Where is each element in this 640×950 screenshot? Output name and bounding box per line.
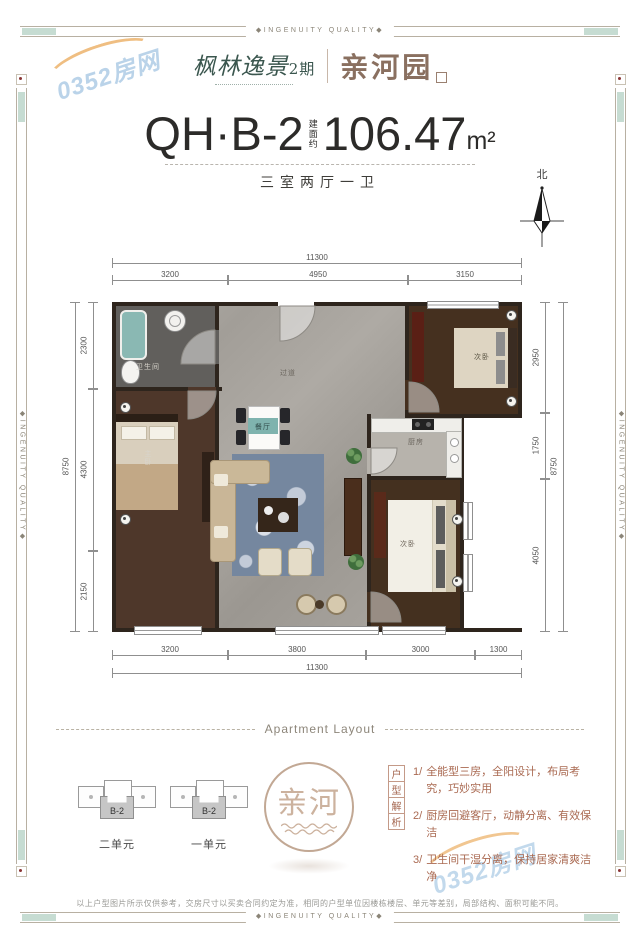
building-key-plan: B-2 二单元 B-2 一单元 (78, 772, 248, 852)
seal-text: 亲河 (277, 778, 341, 822)
area-label: 建面约 (307, 119, 320, 149)
dim-value: 4300 (80, 389, 94, 551)
project-name: 亲河园 (340, 46, 433, 86)
dim-value: 3000 (366, 642, 475, 656)
dim-value: 2300 (80, 302, 94, 389)
north-label: 北 (519, 166, 565, 182)
frame-cap (22, 28, 56, 35)
divider-dashes (56, 729, 255, 730)
door-arcs (112, 302, 522, 632)
frame-band-left: ◆INGENUITY QUALITY◆ (16, 88, 27, 864)
frame-corner-ornament (16, 866, 27, 877)
dim-value: 8750 (550, 302, 564, 632)
dot-icon (89, 795, 93, 799)
brand-ornament (215, 84, 293, 85)
dim-right-total: 8750 (550, 302, 564, 632)
point-text: 卫生间干湿分离，保持居家清爽洁净 (426, 852, 598, 886)
brand-logo: 枫林逸景2期 (193, 47, 316, 85)
room-label-bathroom: 卫生间 (136, 362, 160, 372)
area-value: 106.47 (323, 106, 467, 161)
unit-code: QH·B-2 (144, 106, 303, 161)
point-number: 2/ (413, 808, 422, 842)
dim-value: 1300 (475, 642, 522, 656)
frame-cap (22, 914, 56, 921)
analysis-heading: 户 型 解 析 (388, 766, 405, 886)
frame-slogan-bottom: ◆INGENUITY QUALITY◆ (246, 908, 394, 926)
frame-cap (584, 28, 618, 35)
frame-cap (617, 830, 624, 860)
heading-char: 户 (388, 765, 405, 782)
heading-char: 型 (388, 781, 405, 798)
point-number: 3/ (413, 852, 422, 886)
dim-value: 3200 (112, 267, 228, 281)
project-seal-icon (436, 72, 447, 83)
dim-value: 8750 (62, 302, 76, 632)
point-text: 全能型三房，全阳设计，布局考究，巧妙实用 (426, 764, 598, 798)
dot-icon (141, 795, 145, 799)
dim-value: 2950 (532, 302, 546, 413)
section-divider-label: Apartment Layout (265, 722, 376, 736)
dot-icon (181, 795, 185, 799)
dim-right-segments: 2950 1750 4050 (532, 302, 546, 632)
point-number: 1/ (413, 764, 422, 798)
frame-slogan-left: ◆INGENUITY QUALITY◆ (18, 399, 26, 552)
frame-slogan-right: ◆INGENUITY QUALITY◆ (617, 399, 625, 552)
frame-band-right: ◆INGENUITY QUALITY◆ (615, 88, 626, 864)
point-text: 厨房回避客厅，动静分离、有效保洁 (426, 808, 598, 842)
analysis-point: 1/ 全能型三房，全阳设计，布局考究，巧妙实用 (413, 764, 598, 798)
brand-name: 枫林逸景2期 (193, 47, 316, 81)
title-divider (165, 164, 475, 165)
dim-value: 3150 (408, 267, 522, 281)
room-label-dining: 餐厅 (255, 422, 271, 432)
disclaimer: 以上户型图片所示仅供参考，交房尺寸以买卖合同约定为准，相同的户型单位因楼栋楼层、… (60, 898, 580, 909)
compass-icon (519, 183, 565, 249)
room-label-hall: 过道 (280, 368, 296, 378)
section-divider: Apartment Layout (56, 722, 584, 736)
waves-icon (281, 822, 337, 837)
title-main: QH·B-2 建面约 106.47 m² (0, 106, 640, 161)
frame-corner-ornament (615, 866, 626, 877)
analysis-section: 户 型 解 析 1/ 全能型三房，全阳设计，布局考究，巧妙实用 2/ 厨房回避客… (388, 764, 598, 886)
room-label-master: 主卧 (142, 450, 152, 466)
brand-phase: 2期 (289, 60, 316, 78)
project-logo: 亲河园 (340, 46, 447, 86)
header-logos: 枫林逸景2期 亲河园 (0, 46, 640, 86)
room-label-kitchen: 厨房 (408, 437, 424, 447)
heading-char: 析 (388, 813, 405, 830)
dim-value: 4050 (532, 479, 546, 632)
dim-value: 4950 (228, 267, 408, 281)
dim-value: 1750 (532, 413, 546, 479)
dim-left-total: 8750 (62, 302, 76, 632)
frame-cap (584, 914, 618, 921)
analysis-point: 3/ 卫生间干湿分离，保持居家清爽洁净 (413, 852, 598, 886)
seal-reflection (268, 858, 350, 874)
dot-icon (233, 795, 237, 799)
key-plan-unit: B-2 一单元 (170, 772, 248, 852)
analysis-point: 2/ 厨房回避客厅，动静分离、有效保洁 (413, 808, 598, 842)
dim-top-total: 11300 (112, 250, 522, 264)
dim-value: 3200 (112, 642, 228, 656)
north-compass: 北 (519, 166, 565, 254)
key-plan-unit: B-2 二单元 (78, 772, 156, 852)
dim-value: 11300 (112, 250, 522, 264)
dim-value: 2150 (80, 551, 94, 632)
frame-band-top: ◆INGENUITY QUALITY◆ (20, 26, 620, 37)
area-unit: m² (466, 127, 495, 161)
apartment-poster: ◆INGENUITY QUALITY◆ ◆INGENUITY QUALITY◆ … (0, 0, 640, 950)
unit-name: 一单元 (170, 836, 248, 852)
dim-bottom-total: 11300 (112, 660, 522, 674)
floor-plan: 卫生间 主卧 过道 餐厅 厨房 次卧 次卧 (112, 302, 522, 632)
room-label-bedroom2: 次卧 (474, 352, 490, 362)
unit-name: 二单元 (78, 836, 156, 852)
dim-value: 3800 (228, 642, 366, 656)
dim-left-segments: 2300 4300 2150 (80, 302, 94, 632)
frame-slogan-top: ◆INGENUITY QUALITY◆ (246, 22, 394, 40)
frame-cap (18, 830, 25, 860)
room-label-bedroom3: 次卧 (400, 539, 416, 549)
frame-band-bottom: ◆INGENUITY QUALITY◆ (20, 912, 620, 923)
dim-bottom-segments: 3200 3800 3000 1300 (112, 642, 522, 656)
dim-value: 11300 (112, 660, 522, 674)
heading-char: 解 (388, 797, 405, 814)
brand-seal: 亲河 (264, 762, 354, 852)
analysis-points: 1/ 全能型三房，全阳设计，布局考究，巧妙实用 2/ 厨房回避客厅，动静分离、有… (413, 764, 598, 886)
divider-dashes (385, 729, 584, 730)
logo-divider (327, 49, 328, 83)
dim-top-segments: 3200 4950 3150 (112, 267, 522, 281)
